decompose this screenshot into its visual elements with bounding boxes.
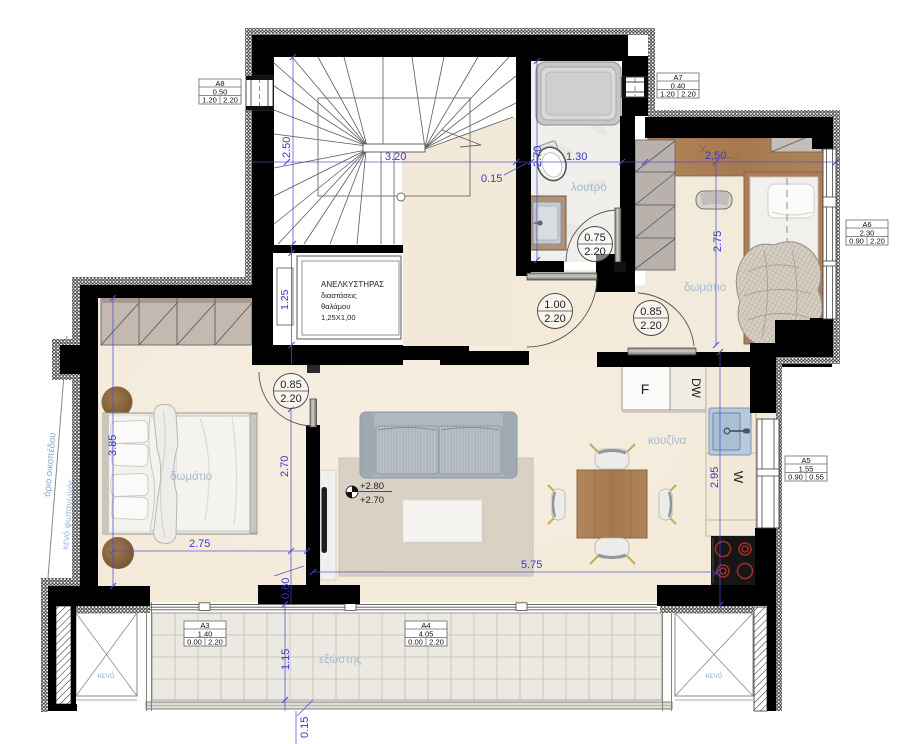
svg-text:1.00: 1.00 <box>544 299 565 311</box>
svg-text:2.70: 2.70 <box>279 456 291 477</box>
svg-text:DW: DW <box>689 378 703 399</box>
svg-text:2.75: 2.75 <box>712 231 724 252</box>
svg-text:2.50: 2.50 <box>281 137 293 158</box>
svg-text:θαλάμου: θαλάμου <box>321 302 350 311</box>
svg-text:5.75: 5.75 <box>521 559 542 571</box>
svg-text:2.20: 2.20 <box>280 393 301 405</box>
svg-text:2.20: 2.20 <box>544 313 565 325</box>
svg-text:0.15: 0.15 <box>299 717 311 738</box>
svg-text:+2.80: +2.80 <box>360 481 384 492</box>
svg-text:3.20: 3.20 <box>385 151 406 163</box>
svg-text:εξώστης: εξώστης <box>319 654 362 666</box>
svg-text:2.20: 2.20 <box>870 237 885 246</box>
svg-text:2.75: 2.75 <box>189 538 210 550</box>
svg-text:2.70: 2.70 <box>532 146 544 167</box>
svg-text:0.00: 0.00 <box>408 638 423 647</box>
svg-text:0.85: 0.85 <box>280 379 301 391</box>
svg-text:1.20: 1.20 <box>202 96 217 105</box>
svg-text:1.25: 1.25 <box>279 289 291 310</box>
svg-text:2.20: 2.20 <box>208 638 223 647</box>
svg-text:δωμάτιο: δωμάτιο <box>170 471 212 483</box>
svg-text:0.00: 0.00 <box>187 638 202 647</box>
svg-text:2.20: 2.20 <box>223 96 238 105</box>
svg-text:0.90: 0.90 <box>849 237 864 246</box>
svg-text:2.20: 2.20 <box>584 246 605 258</box>
svg-text:δωμάτιο: δωμάτιο <box>684 282 726 294</box>
svg-text:κουζίνα: κουζίνα <box>648 435 687 447</box>
svg-text:2.20: 2.20 <box>681 90 696 99</box>
svg-text:2.50: 2.50 <box>705 150 726 162</box>
svg-text:1.30: 1.30 <box>566 151 587 163</box>
svg-text:2.20: 2.20 <box>429 638 444 647</box>
svg-text:2.20: 2.20 <box>640 320 661 332</box>
svg-text:1.20: 1.20 <box>660 90 675 99</box>
svg-text:1,25Χ1,00: 1,25Χ1,00 <box>321 313 356 322</box>
svg-text:0.85: 0.85 <box>640 306 661 318</box>
svg-text:1.15: 1.15 <box>280 649 292 670</box>
svg-text:ΑΝΕΛΚΥΣΤΗΡΑΣ: ΑΝΕΛΚΥΣΤΗΡΑΣ <box>321 280 384 289</box>
svg-text:2.95: 2.95 <box>709 467 721 488</box>
svg-text:0.75: 0.75 <box>584 232 605 244</box>
svg-text:0.60: 0.60 <box>280 578 292 599</box>
svg-text:+2.70: +2.70 <box>360 495 384 506</box>
svg-text:0.15: 0.15 <box>481 173 502 185</box>
svg-text:W: W <box>731 471 746 484</box>
svg-text:3.85: 3.85 <box>107 435 119 456</box>
svg-text:λουτρό: λουτρό <box>571 182 607 194</box>
svg-text:F: F <box>641 381 650 397</box>
svg-text:διαστάσεις: διαστάσεις <box>321 291 357 300</box>
svg-text:0.55: 0.55 <box>809 473 824 482</box>
svg-text:0.90: 0.90 <box>788 473 803 482</box>
svg-text:κενό: κενό <box>705 670 722 680</box>
svg-text:κενό: κενό <box>97 670 114 680</box>
